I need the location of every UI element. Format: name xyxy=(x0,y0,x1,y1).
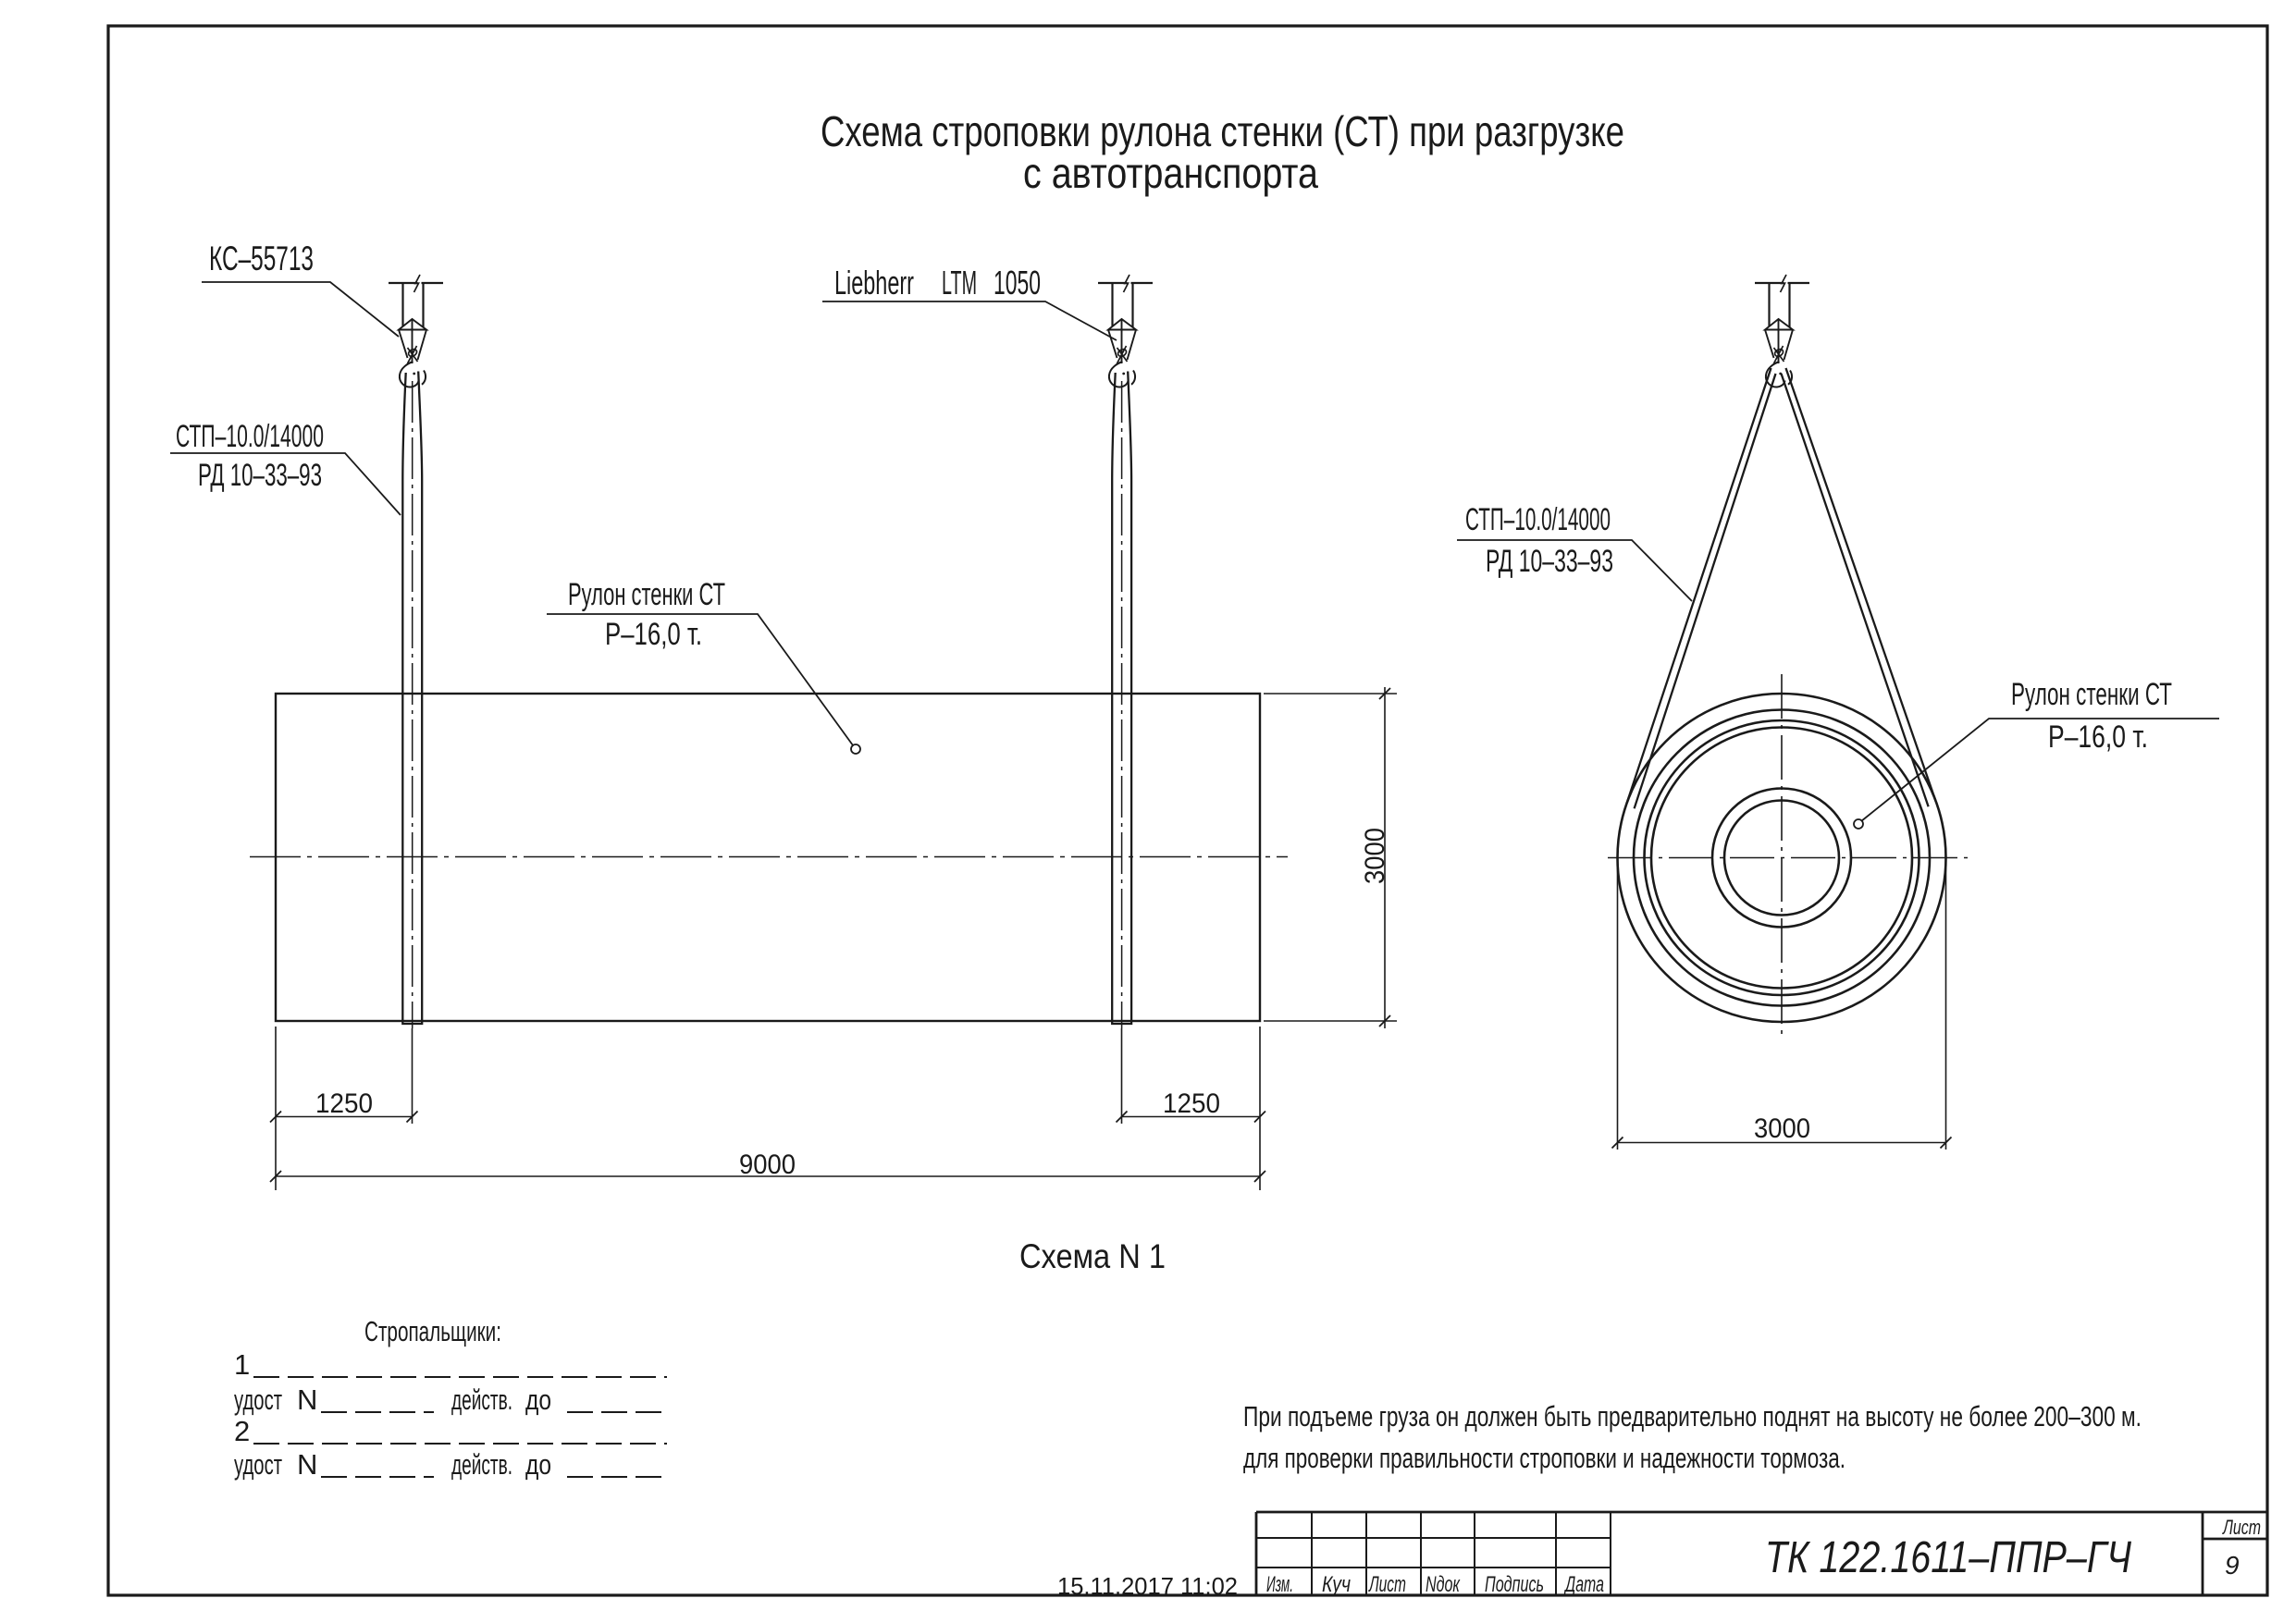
svg-text:15.11.2017 11:02: 15.11.2017 11:02 xyxy=(1057,1572,1238,1600)
svg-text:Подпись: Подпись xyxy=(1485,1572,1544,1597)
svg-text:При подъеме груза он долже: При подъеме груза он должен быть предвар… xyxy=(1243,1400,2142,1432)
svg-text:Р–16,0 т.: Р–16,0 т. xyxy=(605,617,702,652)
svg-text:Изм.: Изм. xyxy=(1266,1572,1293,1597)
svg-text:действ.: действ. xyxy=(451,1448,512,1481)
svg-text:РД 10–33–93: РД 10–33–93 xyxy=(1486,544,1613,579)
svg-text:удост: удост xyxy=(234,1448,282,1481)
svg-text:LTM: LTM xyxy=(942,264,977,301)
svg-text:3000: 3000 xyxy=(1754,1113,1810,1144)
svg-text:действ.: действ. xyxy=(451,1383,512,1416)
svg-text:КС–55713: КС–55713 xyxy=(209,240,314,277)
svg-text:ТК 122.1611–ППР–ГЧ: ТК 122.1611–ППР–ГЧ xyxy=(1765,1533,2132,1582)
svg-text:Nдок: Nдок xyxy=(1426,1572,1461,1597)
svg-text:1250: 1250 xyxy=(1163,1088,1220,1119)
svg-text:до: до xyxy=(525,1383,551,1416)
svg-text:1050: 1050 xyxy=(994,264,1041,301)
svg-text:с автотранспорта: с автотранспорта xyxy=(1023,149,1318,197)
svg-text:Схема N 1: Схема N 1 xyxy=(1019,1237,1166,1275)
svg-text:Куч: Куч xyxy=(1322,1572,1351,1597)
svg-text:до: до xyxy=(525,1448,551,1481)
svg-text:N: N xyxy=(297,1383,317,1416)
svg-text:1: 1 xyxy=(234,1348,250,1381)
svg-text:СТП–10.0/14000: СТП–10.0/14000 xyxy=(1465,502,1611,537)
svg-text:Рулон стенки СТ: Рулон стенки СТ xyxy=(568,577,725,612)
svg-text:2: 2 xyxy=(234,1415,250,1447)
svg-text:СТП–10.0/14000: СТП–10.0/14000 xyxy=(176,419,324,454)
svg-text:1250: 1250 xyxy=(315,1088,373,1119)
svg-text:Liebherr: Liebherr xyxy=(834,264,914,301)
svg-text:для проверки правильности с: для проверки правильности строповки и на… xyxy=(1243,1442,1845,1474)
svg-text:Стропальщики:: Стропальщики: xyxy=(364,1315,501,1347)
svg-text:Лист: Лист xyxy=(1368,1572,1406,1597)
svg-text:9: 9 xyxy=(2225,1551,2240,1580)
svg-text:РД 10–33–93: РД 10–33–93 xyxy=(198,458,322,493)
svg-text:3000: 3000 xyxy=(1360,828,1390,884)
svg-text:удост: удост xyxy=(234,1383,282,1416)
svg-text:9000: 9000 xyxy=(739,1150,796,1180)
svg-text:Рулон стенки СТ: Рулон стенки СТ xyxy=(2011,677,2172,712)
svg-text:Р–16,0 т.: Р–16,0 т. xyxy=(2048,719,2148,755)
svg-text:Дата: Дата xyxy=(1563,1572,1604,1597)
svg-text:N: N xyxy=(297,1448,317,1481)
svg-text:Лист: Лист xyxy=(2222,1516,2261,1539)
